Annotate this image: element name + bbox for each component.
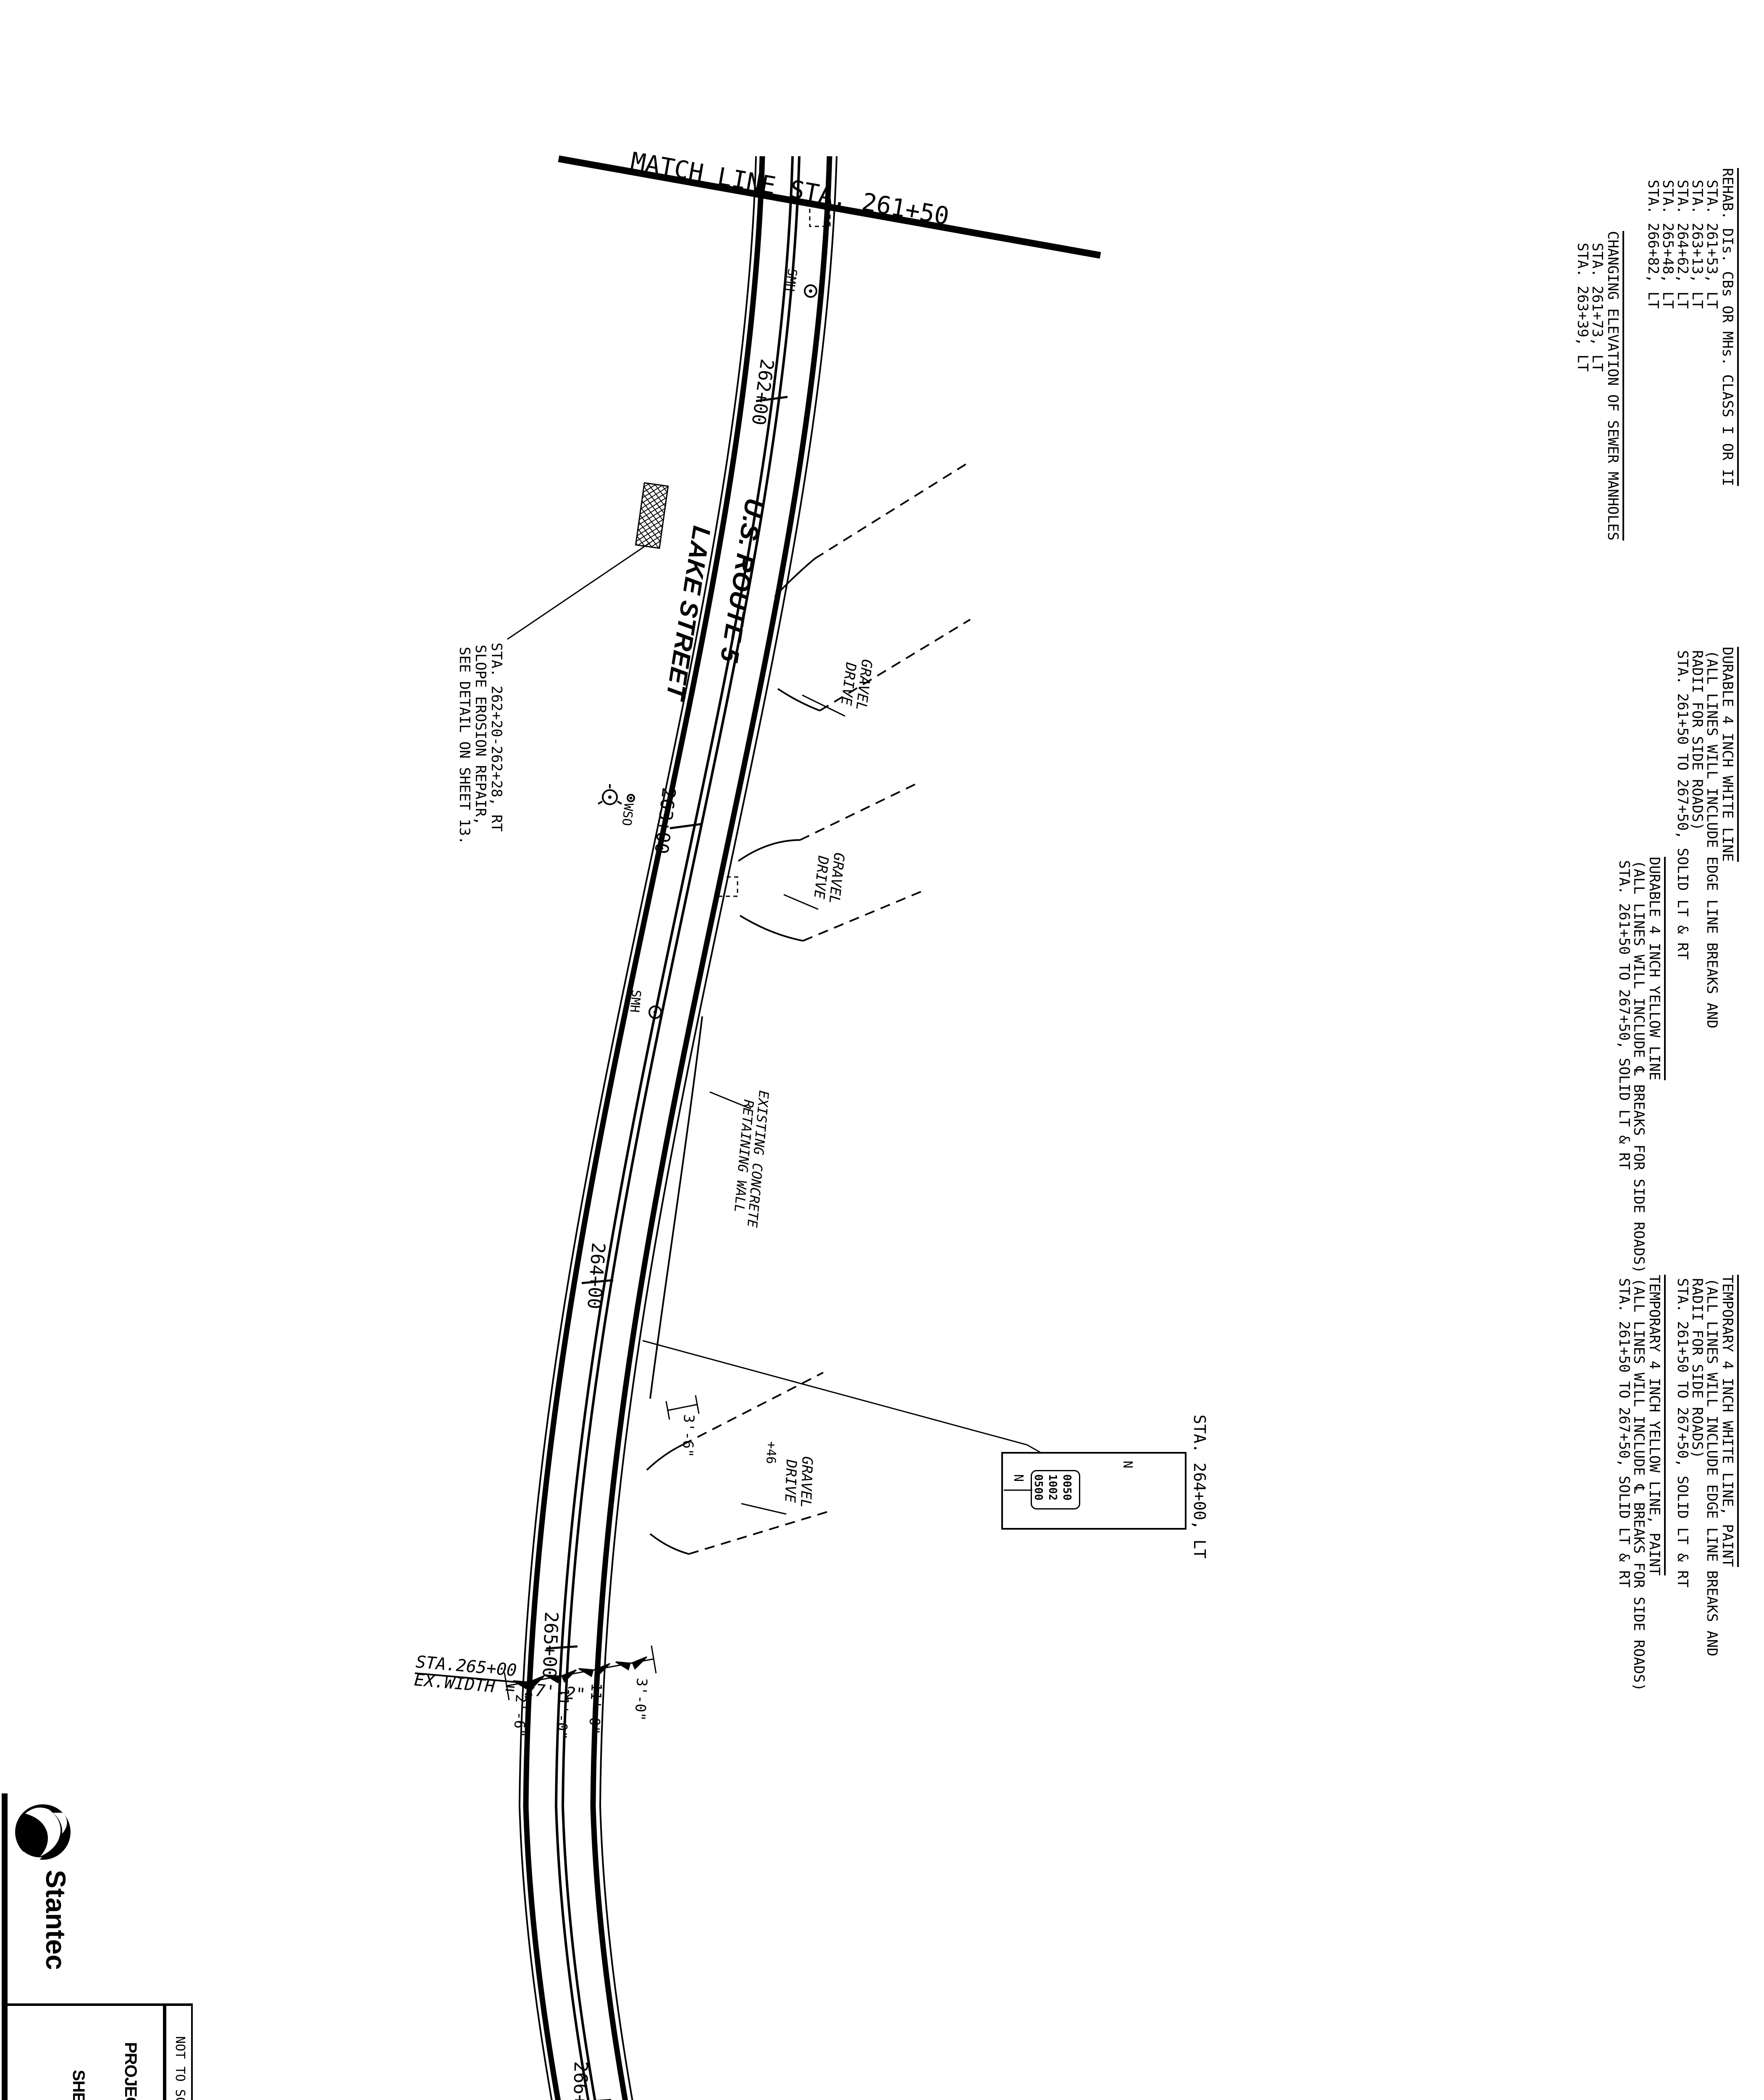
stantec-logo-mark xyxy=(15,1804,71,1862)
temp-yellow-title: TEMPORARY 4 INCH YELLOW LINE, PAINT xyxy=(1646,1275,1666,1575)
durable-yellow-title: DURABLE 4 INCH YELLOW LINE xyxy=(1646,857,1666,1080)
plan-sheet: { "ink": "#000000", "paper": "#ffffff", … xyxy=(0,0,1764,2100)
titleblock-vertical-2 xyxy=(163,2003,166,2100)
temp-yellow-line-1: (ALL LINES WILL INCLUDE ℄ BREAKS FOR SID… xyxy=(1631,1278,1646,1691)
smh-label-1: SMH xyxy=(782,268,799,292)
road-left-edge-line xyxy=(526,156,762,2100)
sign-264-station-label: STA. 264+00, LT xyxy=(1191,1415,1208,1559)
rehab-item-5: STA. 266+82, LT xyxy=(1645,180,1661,309)
dim-11-0-a: 11'-0" xyxy=(553,1688,571,1740)
dim-3-6: 3'-6" xyxy=(680,1414,696,1458)
dim-11-0-b: 11'-0" xyxy=(586,1683,604,1735)
not-to-scale-label: NOT TO SCALE xyxy=(173,2036,186,2100)
durable-white-line-1: (ALL LINES WILL INCLUDE EDGE LINE BREAKS… xyxy=(1704,650,1719,1029)
rehab-item-3: STA. 264+62, LT xyxy=(1675,180,1690,309)
durable-yellow-line-1: (ALL LINES WILL INCLUDE ℄ BREAKS FOR SID… xyxy=(1631,860,1646,1273)
erosion-note-3: SEE DETAIL ON SHEET 13. xyxy=(457,647,472,845)
durable-yellow-line-2: STA. 261+50 TO 267+50, SOLID LT & RT xyxy=(1616,860,1632,1170)
sign-264-box xyxy=(1001,1452,1186,1530)
stantec-wordmark: Stantec xyxy=(41,1870,71,1970)
erosion-note-2: SLOPE EROSION REPAIR, xyxy=(472,645,488,825)
rehab-item-1: STA. 261+53, LT xyxy=(1704,180,1719,309)
sheet-title-line1: PROJECT LAYOUT xyxy=(121,2042,139,2100)
sign-264-n1: N xyxy=(1121,1461,1134,1468)
plus46-label: +46 xyxy=(764,1441,778,1464)
sign-264-rows: 005010020500 xyxy=(1031,1474,1074,1501)
changing-item-1: STA. 261+73, LT xyxy=(1589,243,1605,372)
temp-yellow-line-2: STA. 261+50 TO 267+50, SOLID LT & RT xyxy=(1616,1278,1632,1588)
temp-white-line-3: STA. 261+50 TO 267+50, SOLID LT & RT xyxy=(1675,1278,1690,1588)
sign-264-n2: N xyxy=(1011,1474,1025,1482)
station-266: 266+00 xyxy=(570,2061,591,2100)
smh-label-2: SMH xyxy=(627,989,643,1013)
leader-lines xyxy=(460,543,1040,2100)
gravel-drive-3b: DRIVE xyxy=(782,1459,799,1503)
durable-white-line-2: RADII FOR SIDE ROADS) xyxy=(1689,650,1705,831)
rehab-item-4: STA. 265+48, LT xyxy=(1660,180,1675,309)
durable-white-line-3: STA. 261+50 TO 267+50, SOLID LT & RT xyxy=(1675,650,1690,960)
rehab-item-2: STA. 263+13, LT xyxy=(1689,180,1705,309)
drawing-linework xyxy=(0,0,1764,2100)
dim-2-6: 2'-6" xyxy=(511,1694,528,1738)
temp-white-line-1: (ALL LINES WILL INCLUDE EDGE LINE BREAKS… xyxy=(1704,1278,1719,1656)
durable-white-title: DURABLE 4 INCH WHITE LINE xyxy=(1719,647,1739,862)
road-right-edge-line xyxy=(593,156,829,2100)
gravel-drive-3a: GRAVEL xyxy=(798,1456,815,1508)
road-lines xyxy=(520,156,837,2100)
gravel-drive-2b: DRIVE xyxy=(811,855,831,900)
scale-cell-border xyxy=(191,2003,193,2100)
erosion-note-1: STA. 262+20-262+28, RT xyxy=(488,643,504,832)
temp-white-line-2: RADII FOR SIDE ROADS) xyxy=(1689,1278,1705,1459)
wso-label-1: WSO xyxy=(619,803,635,827)
temp-white-title: TEMPORARY 4 INCH WHITE LINE, PAINT xyxy=(1719,1275,1739,1567)
rehab-title: REHAB. DIs. CBs OR MHs. CLASS I OR II xyxy=(1719,168,1739,486)
retaining-wall-line xyxy=(650,1016,702,1399)
sheet-left-border xyxy=(2,1793,8,2100)
station-264: 264+00 xyxy=(584,1242,608,1310)
sheet-title-line2: SHEET #2 xyxy=(69,2070,87,2100)
dim-3-0: 3'-0" xyxy=(632,1677,649,1721)
changing-title: CHANGING ELEVATION OF SEWER MANHOLES xyxy=(1605,231,1624,541)
changing-item-2: STA. 263+39, LT xyxy=(1575,243,1590,372)
